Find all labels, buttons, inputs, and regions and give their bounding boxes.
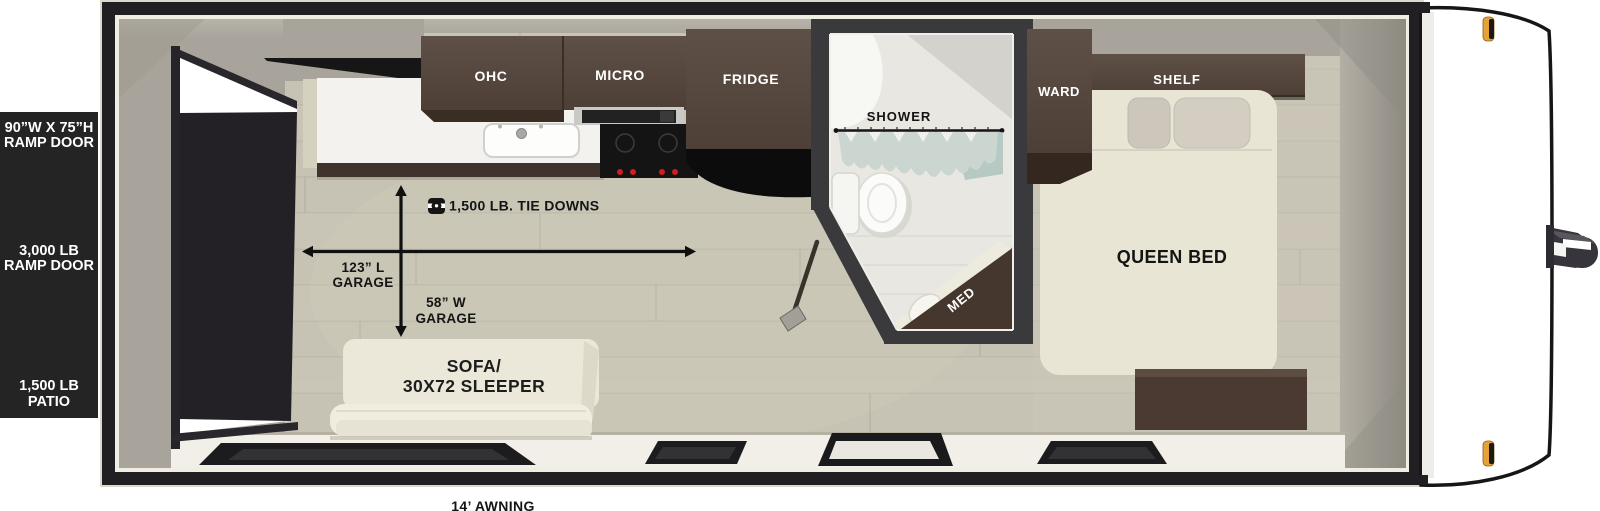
svg-text:WARD: WARD [1038, 84, 1080, 99]
svg-text:MICRO: MICRO [595, 67, 645, 83]
svg-text:30X72 SLEEPER: 30X72 SLEEPER [403, 376, 545, 396]
svg-text:90”W X 75”H: 90”W X 75”H [5, 120, 94, 136]
svg-text:RAMP DOOR: RAMP DOOR [4, 135, 94, 151]
svg-text:14’ AWNING: 14’ AWNING [451, 498, 535, 511]
svg-text:FRIDGE: FRIDGE [723, 71, 780, 87]
svg-text:SHOWER: SHOWER [867, 109, 932, 124]
svg-text:PATIO: PATIO [28, 394, 70, 410]
svg-text:GARAGE: GARAGE [415, 311, 476, 326]
svg-text:SOFA/: SOFA/ [447, 356, 502, 376]
svg-text:123” L: 123” L [341, 260, 384, 275]
svg-text:OHC: OHC [475, 68, 508, 84]
svg-text:58” W: 58” W [426, 295, 466, 310]
svg-text:1,500 LB. TIE DOWNS: 1,500 LB. TIE DOWNS [449, 198, 599, 214]
svg-text:SHELF: SHELF [1153, 72, 1201, 87]
svg-text:3,000 LB: 3,000 LB [19, 243, 79, 259]
svg-text:GARAGE: GARAGE [332, 275, 393, 290]
svg-text:QUEEN BED: QUEEN BED [1117, 247, 1228, 267]
svg-text:RAMP DOOR: RAMP DOOR [4, 258, 94, 274]
svg-text:1,500 LB: 1,500 LB [19, 378, 79, 394]
